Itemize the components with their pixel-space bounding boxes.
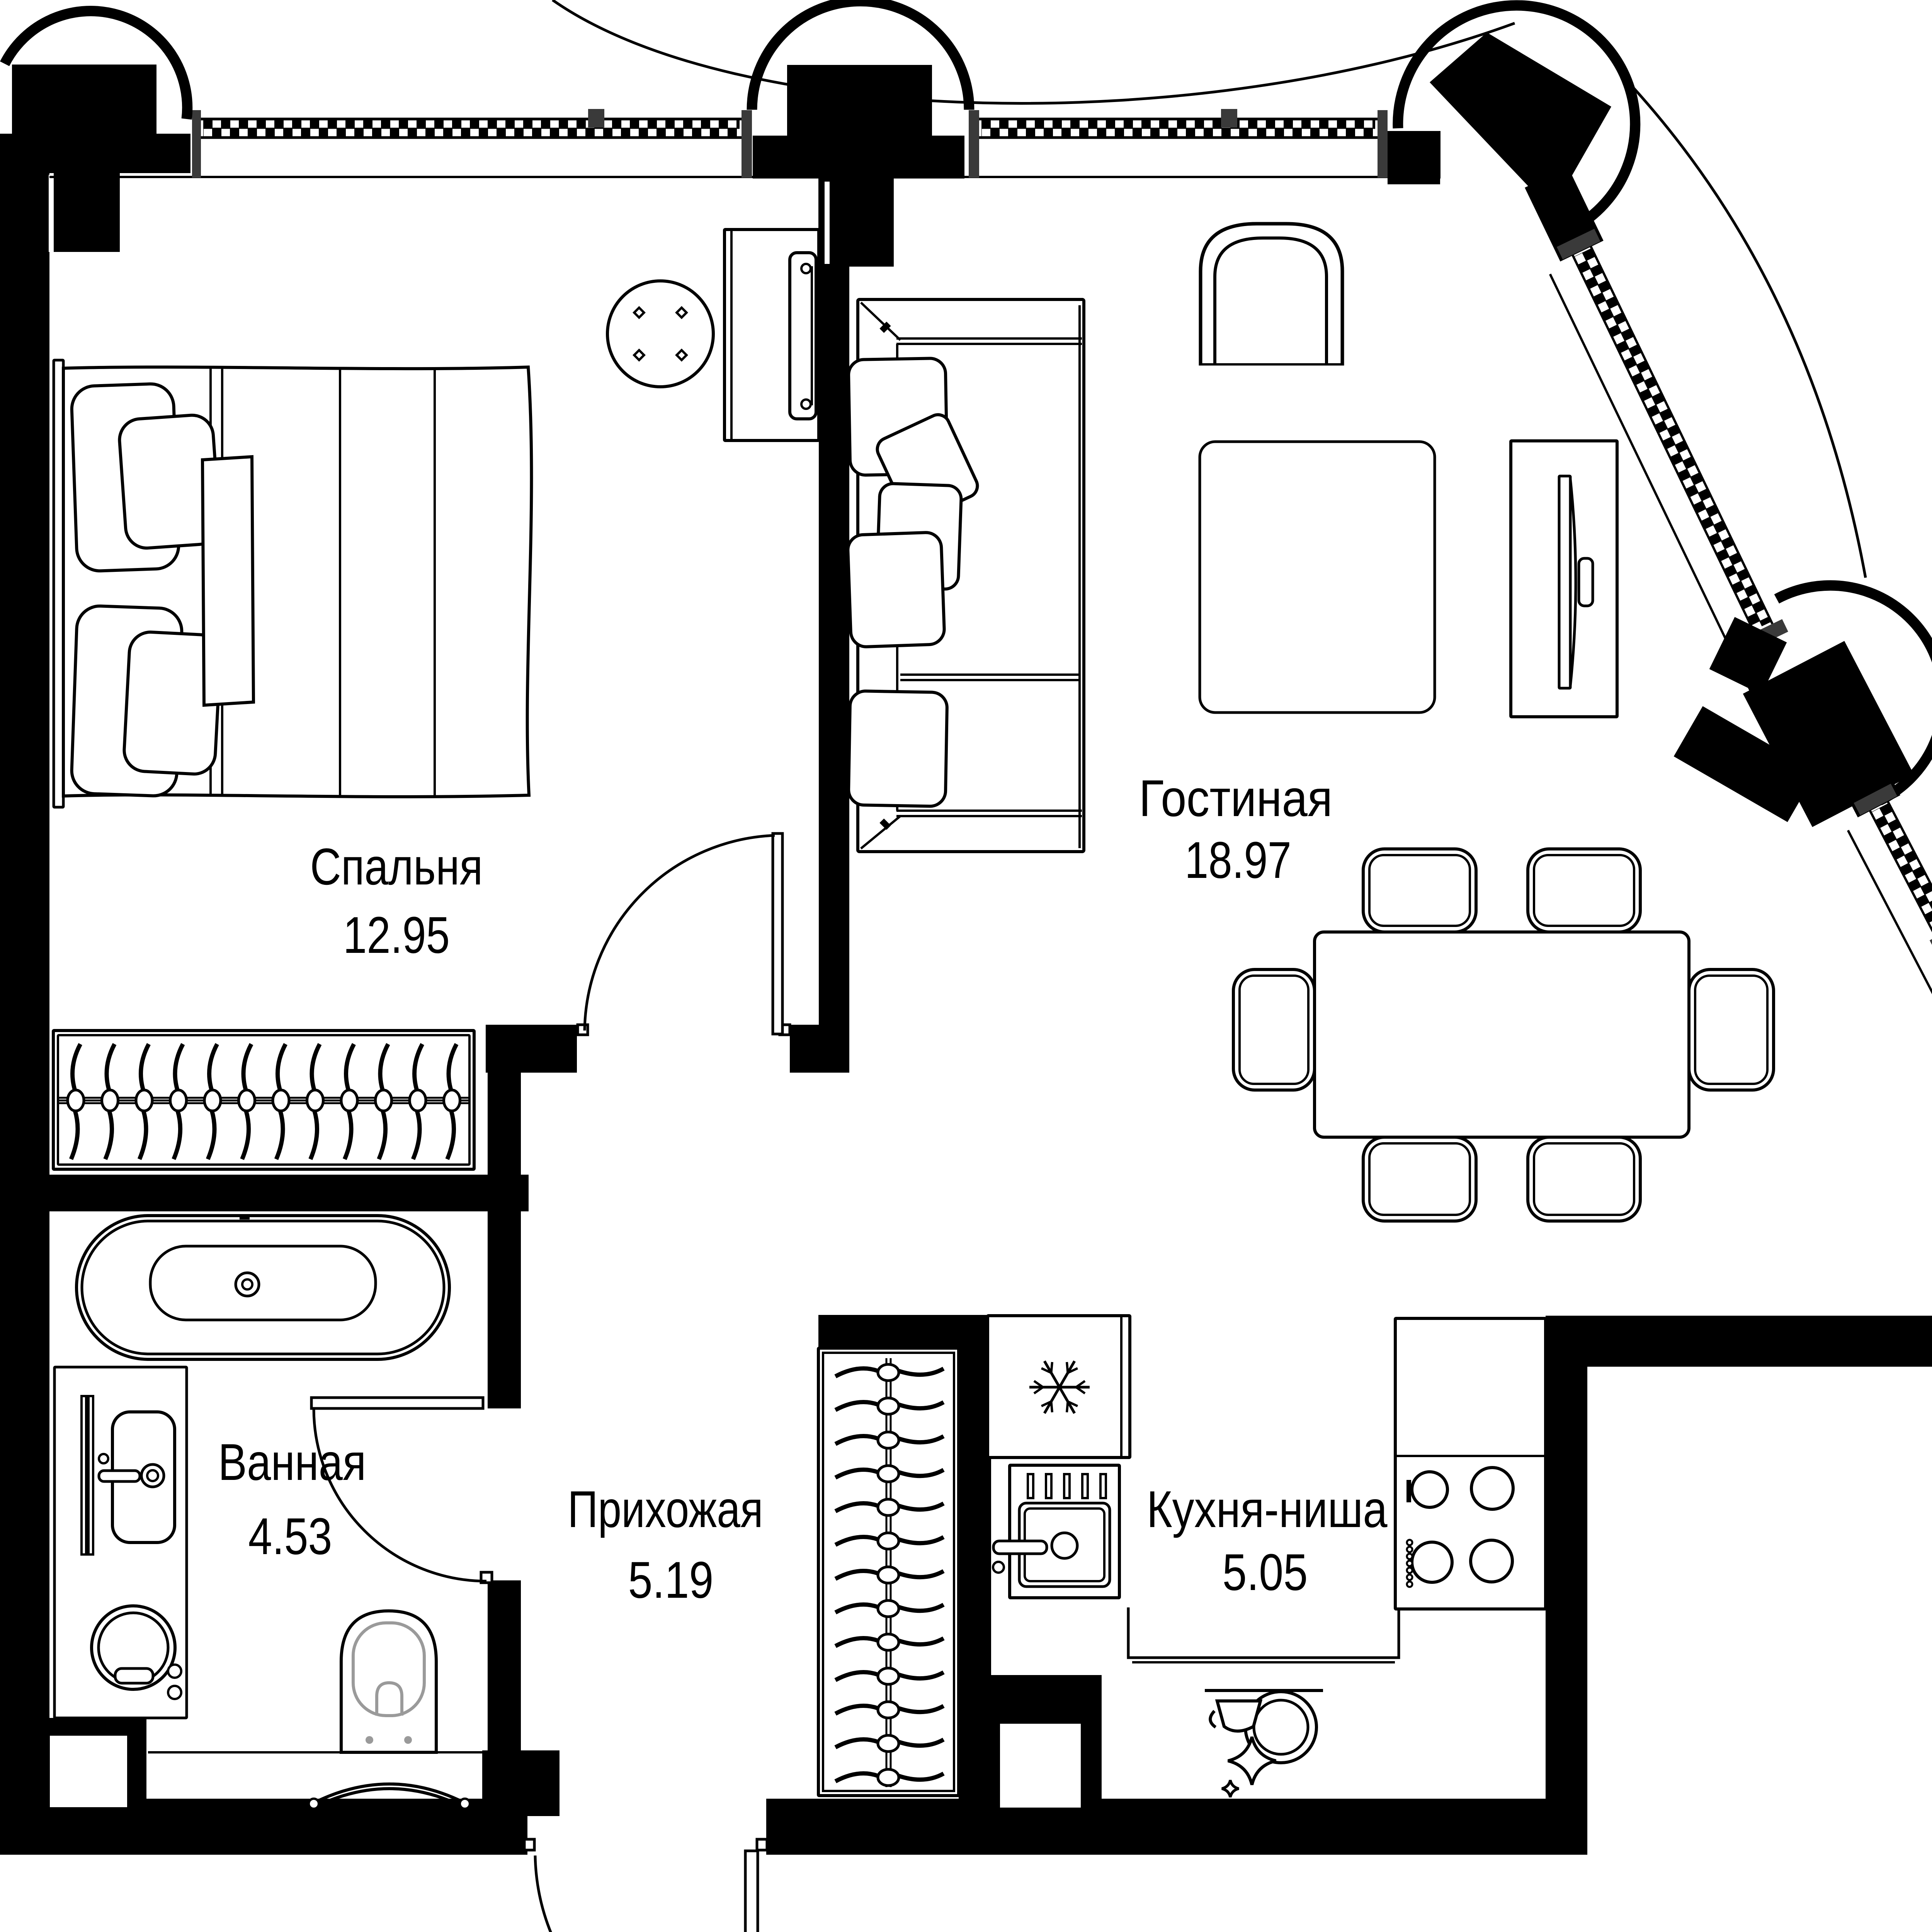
svg-text:Прихожая: Прихожая (568, 1481, 763, 1538)
svg-text:Ванная: Ванная (218, 1434, 366, 1491)
svg-text:5.05: 5.05 (1223, 1544, 1308, 1601)
svg-text:4.53: 4.53 (248, 1508, 332, 1565)
svg-text:18.97: 18.97 (1185, 832, 1291, 889)
svg-text:Гостиная: Гостиная (1139, 770, 1333, 827)
svg-text:12.95: 12.95 (343, 906, 450, 964)
svg-text:5.19: 5.19 (628, 1551, 714, 1609)
svg-text:Спальня: Спальня (310, 838, 483, 896)
svg-text:Кухня-ниша: Кухня-ниша (1147, 1481, 1388, 1538)
